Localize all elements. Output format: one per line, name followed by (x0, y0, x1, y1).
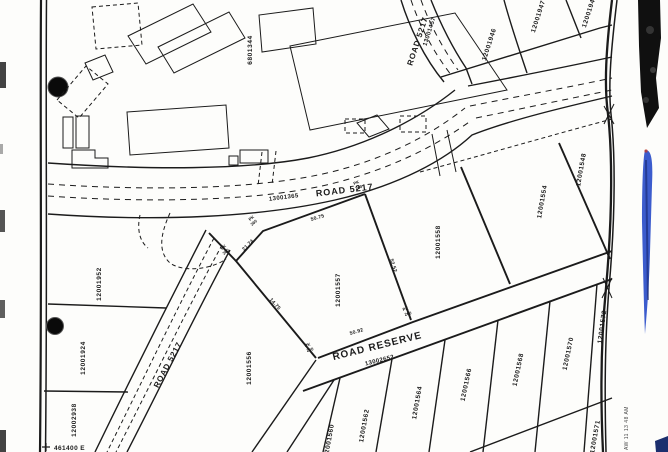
scan-strip-speckle (650, 67, 656, 73)
paper-background (0, 0, 668, 452)
scanned-cadastral-plan: 13001365 ROAD 5217 ROAD 5217 13001457 RO… (0, 0, 668, 452)
page-edge-line (46, 0, 47, 452)
edge-smudge (0, 300, 5, 318)
parcel-label: 12001557 (335, 273, 342, 307)
edge-smudge (0, 210, 5, 232)
edge-smudge (0, 62, 6, 88)
page-edge-line (40, 0, 41, 452)
punch-hole-mark (48, 77, 68, 97)
parcel-label: 12001556 (246, 351, 253, 385)
scan-strip-speckle (646, 26, 654, 34)
parcel-label: 12001924 (80, 341, 87, 375)
edge-smudge (0, 430, 6, 452)
edge-smudge (0, 144, 3, 154)
cadastral-map: 13001365 ROAD 5217 ROAD 5217 13001457 RO… (0, 0, 668, 452)
grid-coordinate-label: 461400 E (54, 445, 85, 452)
edge-note-label: AW 11 13 48 AM (624, 406, 630, 450)
parcel-label: 6801344 (247, 35, 254, 65)
parcel-label: 12001558 (435, 225, 442, 259)
parcel-label: 12001952 (96, 267, 103, 301)
scan-strip-speckle (643, 97, 649, 103)
parcel-label: 12002938 (71, 403, 78, 437)
scan-strip-dot (644, 149, 647, 152)
parcel-boundary (44, 391, 128, 392)
punch-hole-mark (47, 318, 64, 335)
